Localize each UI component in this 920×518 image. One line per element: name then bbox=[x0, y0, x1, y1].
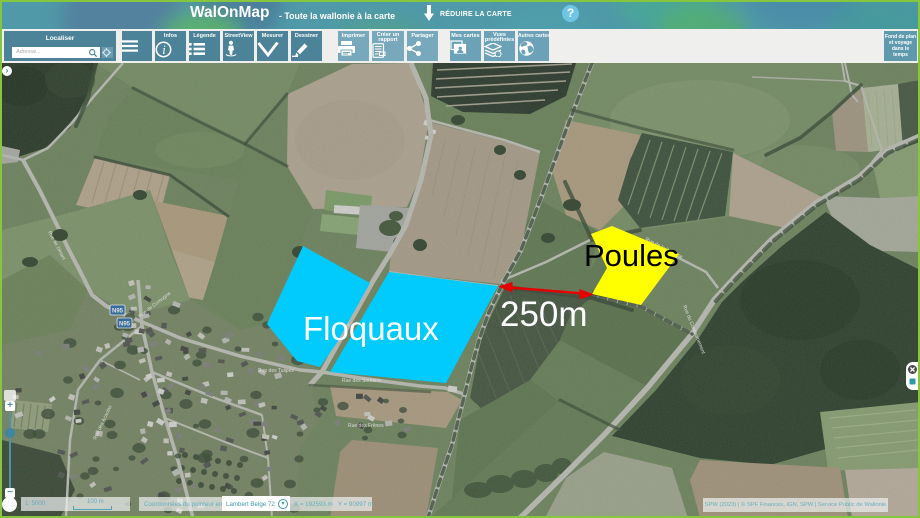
svg-text:i: i bbox=[162, 43, 166, 57]
svg-text:Poules: Poules bbox=[584, 238, 679, 273]
svg-text:Floquaux: Floquaux bbox=[303, 310, 439, 347]
svg-text:250m: 250m bbox=[500, 295, 588, 334]
